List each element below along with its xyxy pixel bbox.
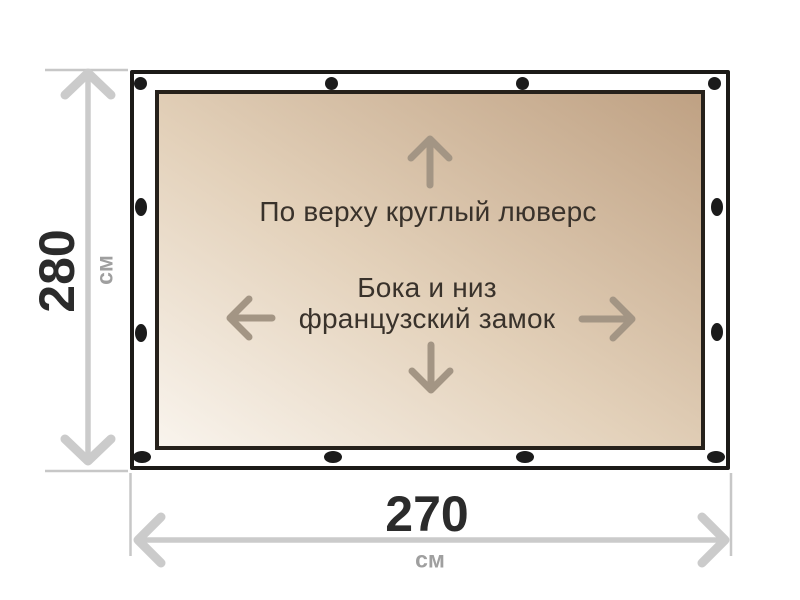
grommet-icon xyxy=(516,451,534,463)
grommet-icon xyxy=(324,451,342,463)
tarp-fabric xyxy=(155,90,705,450)
top-edge-annotation: По верху круглый люверс xyxy=(259,196,596,228)
grommet-icon xyxy=(133,451,151,463)
width-unit: см xyxy=(415,547,445,574)
grommet-icon xyxy=(708,77,721,90)
height-value: 280 xyxy=(28,229,86,312)
grommet-icon xyxy=(135,324,147,342)
grommet-icon xyxy=(711,323,723,341)
sides-annotation-line1: Бока и низ xyxy=(357,272,497,304)
height-unit: см xyxy=(92,255,119,285)
grommet-icon xyxy=(325,77,338,90)
diagram-canvas: По верху круглый люверс Бока и низ франц… xyxy=(0,0,800,600)
width-value: 270 xyxy=(385,485,468,543)
grommet-icon xyxy=(707,451,725,463)
grommet-icon xyxy=(134,77,147,90)
grommet-icon xyxy=(711,198,723,216)
grommet-icon xyxy=(516,77,529,90)
grommet-icon xyxy=(135,198,147,216)
sides-annotation-line2: французский замок xyxy=(299,303,555,335)
